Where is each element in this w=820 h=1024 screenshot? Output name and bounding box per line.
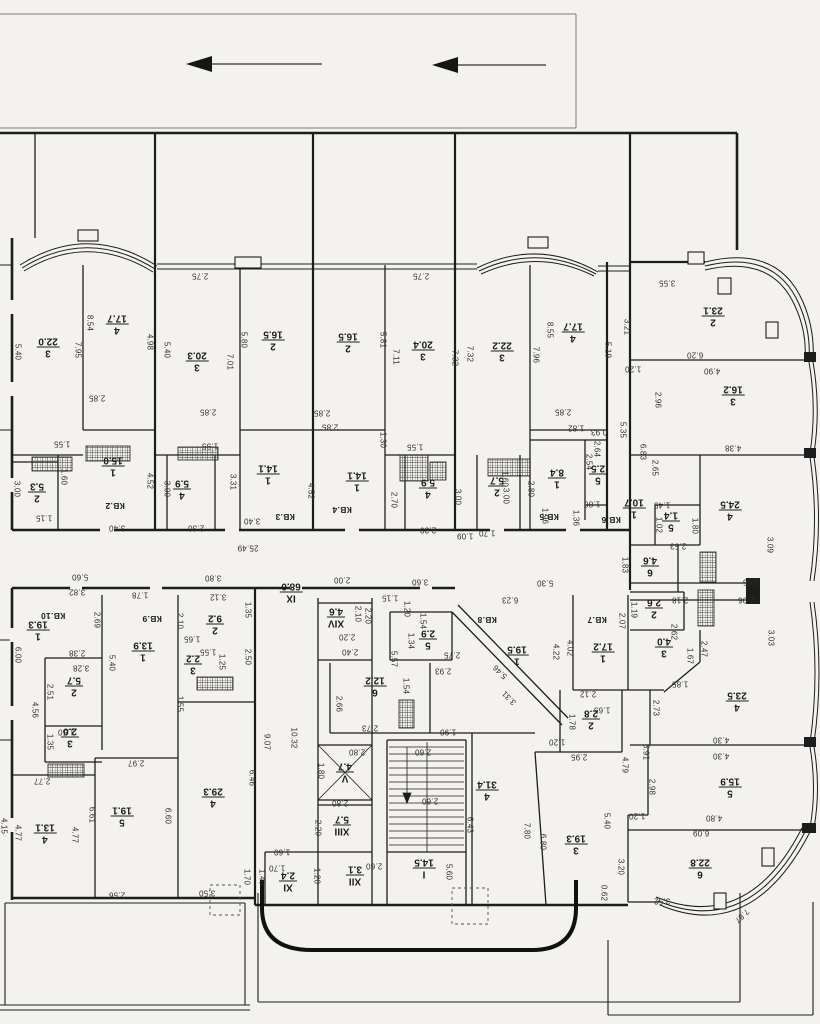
dimension-label: 2.20 bbox=[339, 633, 355, 642]
dimension-label: 1.55 bbox=[407, 443, 423, 452]
room-number: 3 bbox=[490, 352, 513, 363]
dimension-label: 6.80 bbox=[539, 834, 548, 850]
dimension-label: 4.30 bbox=[713, 752, 729, 761]
dimension-label: 3.40 bbox=[244, 517, 260, 526]
room-label: 413.1 bbox=[33, 822, 56, 845]
dimension-label: 2.30 bbox=[420, 526, 436, 535]
dimension-label: 1.90 bbox=[440, 728, 456, 737]
dimension-label: 1.55 bbox=[176, 696, 185, 712]
dimension-label: 2.20 bbox=[314, 820, 323, 836]
dimension-label: 3.80 bbox=[205, 574, 221, 583]
room-number: 1 bbox=[505, 656, 528, 667]
dimension-label: 7.80 bbox=[523, 823, 532, 839]
room-label: 417.7 bbox=[561, 321, 584, 344]
dimension-label: 2.80 bbox=[349, 748, 365, 757]
dimension-label: 5.40 bbox=[163, 342, 172, 358]
room-area: 8.4 bbox=[548, 467, 566, 479]
room-number: IX bbox=[279, 593, 302, 604]
room-number: 5 bbox=[662, 522, 680, 533]
dimension-label: 4.77 bbox=[71, 827, 80, 843]
dimension-label: 1.70 bbox=[243, 869, 252, 885]
dimension-label: 7.32 bbox=[466, 346, 475, 362]
room-number: 3 bbox=[721, 396, 744, 407]
dimension-label: 2.62 bbox=[670, 624, 679, 640]
room-area: 14.1 bbox=[345, 470, 368, 482]
dimension-label: 1.78 bbox=[132, 591, 148, 600]
room-label: 45.9 bbox=[173, 478, 191, 501]
room-area: 16.5 bbox=[336, 331, 359, 343]
room-label: 29.2 bbox=[206, 613, 224, 636]
apartment-label: КВ.6 bbox=[601, 515, 621, 525]
dimension-label: 6.00 bbox=[14, 647, 23, 663]
room-label: XII3.1 bbox=[346, 864, 364, 887]
dimension-label: 5.57 bbox=[390, 651, 399, 667]
dimension-label: 25.49 bbox=[237, 544, 258, 553]
room-label: 114.1 bbox=[345, 470, 368, 493]
dimension-label: 2.40 bbox=[342, 648, 358, 657]
room-number: 1 bbox=[622, 509, 645, 520]
dimension-label: 2.85 bbox=[200, 408, 216, 417]
room-label: 515.9 bbox=[718, 776, 741, 799]
dimension-label: 2.54 bbox=[585, 454, 594, 470]
room-number: 6 bbox=[641, 567, 659, 578]
dimension-label: 4.30 bbox=[713, 736, 729, 745]
room-number: 3 bbox=[185, 362, 208, 373]
dimension-label: 2.65 bbox=[651, 460, 660, 476]
room-number: XIII bbox=[333, 826, 351, 837]
apartment-label: КВ.4 bbox=[332, 505, 352, 515]
dimension-label: 1.60 bbox=[501, 471, 510, 487]
dimension-label: 2.12 bbox=[580, 690, 596, 699]
room-number: XIV bbox=[327, 618, 345, 629]
dimension-label: 2.97 bbox=[128, 759, 144, 768]
dimension-label: 1.50 bbox=[58, 728, 74, 737]
room-label: 113.9 bbox=[131, 640, 154, 663]
room-area: 5.7 bbox=[333, 814, 351, 826]
dimension-label: 4.79 bbox=[621, 757, 630, 773]
room-area: 23.5 bbox=[725, 690, 748, 702]
room-area: 2.9 bbox=[419, 628, 437, 640]
dimension-label: 1.20 bbox=[313, 868, 322, 884]
dimension-label: 6.20 bbox=[687, 351, 703, 360]
dimension-label: 7.96 bbox=[532, 347, 541, 363]
dimension-label: 1.85 bbox=[672, 680, 688, 689]
dimension-label: 5.35 bbox=[619, 422, 628, 438]
dimension-label: 2.70 bbox=[390, 492, 399, 508]
room-number: XI bbox=[279, 882, 297, 893]
room-label: 115.0 bbox=[101, 455, 124, 478]
dimension-label: 1.34 bbox=[407, 633, 416, 649]
dimension-label: 2.10 bbox=[354, 606, 363, 622]
room-area: 14.5 bbox=[412, 857, 435, 869]
dimension-label: 1.78 bbox=[568, 714, 577, 730]
room-label: 45.9 bbox=[419, 477, 437, 500]
dimension-label: 7.32 bbox=[451, 350, 460, 366]
room-area: 29.3 bbox=[201, 786, 224, 798]
room-number: I bbox=[412, 869, 435, 880]
room-number: 4 bbox=[105, 325, 128, 336]
dimension-label: 2.53 bbox=[670, 542, 686, 551]
room-label: 322.2 bbox=[490, 340, 513, 363]
dimension-label: 5.30 bbox=[537, 579, 553, 588]
dimension-label: 1.55 bbox=[200, 648, 216, 657]
room-label: 119.5 bbox=[505, 644, 528, 667]
room-label: 431.4 bbox=[475, 779, 498, 802]
room-label: V4.7 bbox=[336, 761, 354, 784]
room-label: 322.0 bbox=[36, 336, 59, 359]
room-number: 2 bbox=[701, 317, 724, 328]
dimension-label: 3.60 bbox=[412, 578, 428, 587]
dimension-label: 2.56 bbox=[109, 891, 125, 900]
dimension-label: 1.20 bbox=[549, 738, 565, 747]
room-label: IX68.0 bbox=[279, 581, 302, 604]
dimension-label: 1.20 bbox=[625, 365, 641, 374]
dimension-label: 2.10 bbox=[176, 613, 185, 629]
dimension-label: 1.80 bbox=[691, 518, 700, 534]
dimension-label: 1.15 bbox=[382, 594, 398, 603]
dimension-label: 1.54 bbox=[419, 613, 428, 629]
room-area: 17.2 bbox=[591, 641, 614, 653]
room-number: 1 bbox=[591, 653, 614, 664]
dimension-label: 1.80 bbox=[317, 763, 326, 779]
apartment-label: КВ.7 bbox=[587, 615, 607, 625]
room-label: 114.1 bbox=[256, 463, 279, 486]
room-number: 3 bbox=[184, 665, 202, 676]
dimension-label: 2.95 bbox=[571, 753, 587, 762]
room-number: 2 bbox=[261, 341, 284, 352]
floor-plan-scan: 322.0417.7320.3216.5216.5320.4322.2417.7… bbox=[0, 0, 820, 1024]
dimension-label: 5.40 bbox=[14, 344, 23, 360]
dimension-label: 1.70 bbox=[269, 864, 285, 873]
room-label: 216.5 bbox=[261, 329, 284, 352]
dimension-label: 1.15 bbox=[36, 514, 52, 523]
dimension-label: 4.22 bbox=[552, 644, 561, 660]
room-area: 16.5 bbox=[261, 329, 284, 341]
room-label: 119.3 bbox=[26, 619, 49, 642]
room-area: 17.7 bbox=[105, 313, 128, 325]
room-area: 15.0 bbox=[101, 455, 124, 467]
dimension-label: 3.12 bbox=[210, 593, 226, 602]
dimension-label: 3.31 bbox=[500, 689, 518, 707]
dimension-label: 7.87 bbox=[733, 907, 751, 925]
room-number: 1 bbox=[548, 479, 566, 490]
dimension-label: 6.43 bbox=[466, 817, 475, 833]
room-number: 5 bbox=[718, 788, 741, 799]
dimension-label: 3.09 bbox=[766, 537, 775, 553]
room-area: 4.6 bbox=[327, 606, 345, 618]
dimension-label: 4.15 bbox=[0, 818, 9, 834]
room-label: 25.7 bbox=[65, 675, 83, 698]
room-area: 2.6 bbox=[645, 597, 663, 609]
dimension-label: 5.91 bbox=[642, 744, 651, 760]
dimension-label: 2.60 bbox=[422, 797, 438, 806]
dimension-label: 6.23 bbox=[502, 596, 518, 605]
room-label: 22.6 bbox=[645, 597, 663, 620]
dimension-label: 2.75 bbox=[413, 272, 429, 281]
room-label: 320.4 bbox=[411, 339, 434, 362]
dimension-label: 1.54 bbox=[402, 678, 411, 694]
dimension-label: 2.07 bbox=[618, 613, 627, 629]
dimension-label: 3.00 bbox=[13, 481, 22, 497]
room-label: 25.3 bbox=[28, 481, 46, 504]
room-label: 612.2 bbox=[363, 675, 386, 698]
dimension-label: 1.02 bbox=[655, 517, 664, 533]
dimension-label: 3.21 bbox=[623, 319, 632, 335]
room-area: 5.9 bbox=[419, 477, 437, 489]
dimension-label: 1.83 bbox=[621, 557, 630, 573]
room-area: 68.0 bbox=[279, 581, 302, 593]
room-label: XIII5.7 bbox=[333, 814, 351, 837]
dimension-label: 2.85 bbox=[89, 394, 105, 403]
dimension-label: 2.96 bbox=[654, 392, 663, 408]
room-label: 319.3 bbox=[564, 833, 587, 856]
room-area: 22.2 bbox=[490, 340, 513, 352]
dimension-label: 2.95 bbox=[743, 578, 759, 587]
dimension-label: 2.66 bbox=[335, 696, 344, 712]
room-number: 1 bbox=[131, 652, 154, 663]
room-label: 216.5 bbox=[336, 331, 359, 354]
room-area: 5.9 bbox=[173, 478, 191, 490]
room-area: 24.5 bbox=[718, 499, 741, 511]
dimension-label: 2.73 bbox=[652, 700, 661, 716]
room-label: 223.1 bbox=[701, 305, 724, 328]
dimension-label: 6.60 bbox=[164, 808, 173, 824]
apartment-label: КВ.3 bbox=[275, 512, 295, 522]
room-area: 31.4 bbox=[475, 779, 498, 791]
room-label: XI2.4 bbox=[279, 870, 297, 893]
dimension-label: 1.60 bbox=[274, 848, 290, 857]
dimension-label: 3.00 bbox=[454, 489, 463, 505]
dimension-label: 1.30 bbox=[379, 432, 388, 448]
dimension-label: 2.85 bbox=[314, 409, 330, 418]
dimension-label: 1.40 bbox=[258, 869, 267, 885]
dimension-label: 3.20 bbox=[617, 859, 626, 875]
dimension-label: 2.77 bbox=[34, 777, 50, 786]
dimension-label: 5.81 bbox=[379, 332, 388, 348]
dimension-label: 4.52 bbox=[307, 483, 316, 499]
room-area: 23.1 bbox=[701, 305, 724, 317]
room-number: 3 bbox=[655, 648, 673, 659]
dimension-label: 7.11 bbox=[392, 349, 401, 365]
room-number: 4 bbox=[718, 511, 741, 522]
dimension-label: 2.69 bbox=[93, 612, 102, 628]
room-number: 2 bbox=[206, 625, 224, 636]
room-label: 110.7 bbox=[622, 497, 645, 520]
dimension-label: 3.82 bbox=[69, 588, 85, 597]
dimension-label: 1.35 bbox=[46, 734, 55, 750]
dimension-label: 2.00 bbox=[334, 576, 350, 585]
dimension-label: 1.25 bbox=[218, 654, 227, 670]
room-label: 424.5 bbox=[718, 499, 741, 522]
dimension-label: 1.55 bbox=[54, 440, 70, 449]
dimension-label: 3.50 bbox=[199, 889, 215, 898]
room-number: 2 bbox=[645, 609, 663, 620]
apartment-label: КВ.10 bbox=[41, 611, 66, 621]
dimension-label: 2.18 bbox=[672, 596, 688, 605]
dimension-label: 1.20 bbox=[403, 601, 412, 617]
dimension-label: 4.56 bbox=[31, 702, 40, 718]
dimension-label: 1.67 bbox=[686, 648, 695, 664]
dimension-label: 3.00 bbox=[163, 481, 172, 497]
dimension-label: 2.64 bbox=[593, 441, 602, 457]
room-label: XIV4.6 bbox=[327, 606, 345, 629]
room-number: 2 bbox=[65, 687, 83, 698]
room-area: 5.7 bbox=[65, 675, 83, 687]
dimension-label: 1.65 bbox=[594, 706, 610, 715]
room-area: 3.1 bbox=[346, 864, 364, 876]
room-number: 4 bbox=[475, 791, 498, 802]
apartment-label: КВ.8 bbox=[477, 615, 497, 625]
dimension-label: 3.31 bbox=[229, 474, 238, 490]
dimension-label: 5.60 bbox=[445, 864, 454, 880]
dimension-label: 1.60 bbox=[60, 469, 69, 485]
dimension-label: 3.52 bbox=[654, 897, 670, 906]
room-area: 20.4 bbox=[411, 339, 434, 351]
dimension-label: 4.98 bbox=[146, 334, 155, 350]
dimension-label: 9.07 bbox=[263, 734, 272, 750]
dimension-label: 1.55 bbox=[202, 442, 218, 451]
room-label: 52.9 bbox=[419, 628, 437, 651]
room-area: 4.6 bbox=[641, 555, 659, 567]
dimension-label: 1.09 bbox=[457, 532, 473, 541]
apartment-label: КВ.9 bbox=[142, 614, 162, 624]
dimension-label: 2.47 bbox=[700, 641, 709, 657]
room-label: 429.3 bbox=[201, 786, 224, 809]
room-area: 19.1 bbox=[110, 805, 133, 817]
dimension-label: 1.65 bbox=[184, 635, 200, 644]
dimension-label: 4.02 bbox=[566, 640, 575, 656]
dimension-label: 2.50 bbox=[244, 649, 253, 665]
room-number: 2 bbox=[28, 493, 46, 504]
dimension-label: 2.80 bbox=[527, 481, 536, 497]
dimension-label: 5.60 bbox=[72, 573, 88, 582]
dimension-label: 6.83 bbox=[639, 444, 648, 460]
dimension-label: 2.96 bbox=[738, 596, 754, 605]
room-number: 6 bbox=[688, 869, 711, 880]
dimension-label: 4.90 bbox=[704, 367, 720, 376]
room-number: 3 bbox=[61, 738, 79, 749]
dimension-label: 6.46 bbox=[248, 770, 257, 786]
dimension-label: 2.51 bbox=[46, 684, 55, 700]
dimension-label: 0.62 bbox=[600, 885, 609, 901]
dimension-label: 1.35 bbox=[244, 602, 253, 618]
room-number: 4 bbox=[725, 702, 748, 713]
room-number: 1 bbox=[345, 482, 368, 493]
plan-labels-layer: 322.0417.7320.3216.5216.5320.4322.2417.7… bbox=[0, 0, 820, 1024]
room-number: 1 bbox=[101, 467, 124, 478]
dimension-label: 6.61 bbox=[88, 807, 97, 823]
room-number: 2 bbox=[582, 720, 600, 731]
room-number: 5 bbox=[110, 817, 133, 828]
room-area: 17.7 bbox=[561, 321, 584, 333]
dimension-label: 5.80 bbox=[240, 332, 249, 348]
room-area: 1.4 bbox=[662, 510, 680, 522]
room-area: 12.2 bbox=[363, 675, 386, 687]
dimension-label: 1.86 bbox=[584, 500, 600, 509]
dimension-label: 1.20 bbox=[629, 812, 645, 821]
dimension-label: 2.73 bbox=[362, 724, 378, 733]
dimension-label: 8.55 bbox=[546, 322, 555, 338]
room-area: 5.3 bbox=[28, 481, 46, 493]
dimension-label: 2.75 bbox=[192, 272, 208, 281]
dimension-label: 1.45 bbox=[654, 501, 670, 510]
room-label: 117.2 bbox=[591, 641, 614, 664]
dimension-label: 6.09 bbox=[693, 829, 709, 838]
room-number: 5 bbox=[589, 475, 607, 486]
room-area: 14.1 bbox=[256, 463, 279, 475]
room-number: 3 bbox=[411, 351, 434, 362]
dimension-label: 0.93 bbox=[591, 428, 607, 437]
apartment-label: КВ.2 bbox=[105, 501, 125, 511]
dimension-label: 2.85 bbox=[555, 408, 571, 417]
room-area: 22.8 bbox=[688, 857, 711, 869]
dimension-label: 2.98 bbox=[648, 779, 657, 795]
room-number: 4 bbox=[561, 333, 584, 344]
room-label: 316.2 bbox=[721, 384, 744, 407]
dimension-label: 2.75 bbox=[444, 651, 460, 660]
dimension-label: 5.40 bbox=[108, 655, 117, 671]
room-label: 423.5 bbox=[725, 690, 748, 713]
room-number: 4 bbox=[173, 490, 191, 501]
room-area: 15.9 bbox=[718, 776, 741, 788]
room-number: 3 bbox=[564, 845, 587, 856]
room-label: 51.4 bbox=[662, 510, 680, 533]
room-number: 1 bbox=[26, 631, 49, 642]
room-area: 19.3 bbox=[564, 833, 587, 845]
dimension-label: 1.70 bbox=[479, 529, 495, 538]
room-number: 3 bbox=[36, 348, 59, 359]
dimension-label: 3.40 bbox=[109, 524, 125, 533]
room-number: XII bbox=[346, 876, 364, 887]
dimension-label: 2.93 bbox=[435, 667, 451, 676]
room-number: 6 bbox=[363, 687, 386, 698]
dimension-label: 7.01 bbox=[226, 354, 235, 370]
dimension-label: 2.38 bbox=[69, 649, 85, 658]
dimension-label: 2.85 bbox=[322, 423, 338, 432]
dimension-label: 2.60 bbox=[415, 748, 431, 757]
room-number: V bbox=[336, 773, 354, 784]
dimension-label: 3.03 bbox=[767, 630, 776, 646]
room-label: 622.8 bbox=[688, 857, 711, 880]
dimension-label: 1.82 bbox=[568, 424, 584, 433]
dimension-label: 10.32 bbox=[290, 727, 299, 748]
dimension-label: 5.19 bbox=[604, 342, 613, 358]
room-area: 19.5 bbox=[505, 644, 528, 656]
room-number: 2 bbox=[336, 343, 359, 354]
room-area: 22.0 bbox=[36, 336, 59, 348]
dimension-label: 4.38 bbox=[725, 444, 741, 453]
room-area: 16.2 bbox=[721, 384, 744, 396]
dimension-label: 3.28 bbox=[73, 664, 89, 673]
room-number: 5 bbox=[419, 640, 437, 651]
room-label: 320.3 bbox=[185, 350, 208, 373]
room-number: 1 bbox=[256, 475, 279, 486]
dimension-label: 2.30 bbox=[188, 524, 204, 533]
dimension-label: 3.00 bbox=[502, 488, 511, 504]
room-area: 13.1 bbox=[33, 822, 56, 834]
room-label: 519.1 bbox=[110, 805, 133, 828]
room-area: 20.3 bbox=[185, 350, 208, 362]
room-area: 10.7 bbox=[622, 497, 645, 509]
dimension-label: 4.80 bbox=[706, 814, 722, 823]
dimension-label: 8.54 bbox=[86, 315, 95, 331]
dimension-label: 1.36 bbox=[572, 510, 581, 526]
dimension-label: 2.80 bbox=[332, 799, 348, 808]
dimension-label: 3.55 bbox=[659, 279, 675, 288]
room-area: 13.9 bbox=[131, 640, 154, 652]
room-label: 18.4 bbox=[548, 467, 566, 490]
dimension-label: 4.77 bbox=[14, 825, 23, 841]
